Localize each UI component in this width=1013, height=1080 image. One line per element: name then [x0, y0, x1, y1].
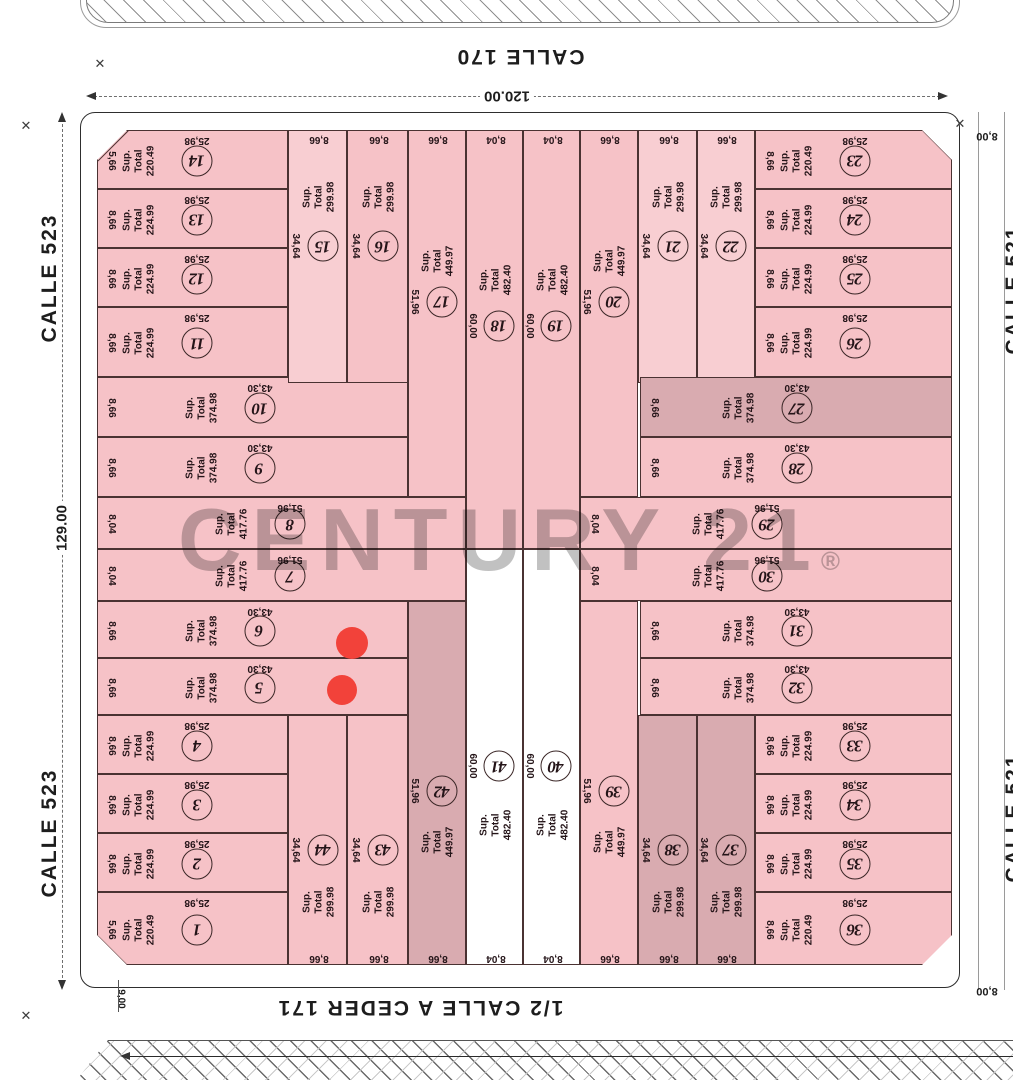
- lot-number: 5: [256, 678, 264, 698]
- lot-number-circle: 23: [839, 145, 870, 176]
- lot-area-label: Sup. Total 449.97: [592, 827, 627, 858]
- lot-area-label: Sup. Total 374.98: [721, 615, 756, 646]
- lot-number: 26: [847, 333, 862, 353]
- lot-number: 6: [256, 621, 264, 641]
- lot-length-dimension: 60,00: [523, 313, 535, 338]
- street-name-right-upper: CALLE 521: [1002, 226, 1013, 355]
- lot-10: 8,66Sup. Total 374.981043,30: [97, 377, 408, 437]
- lot-5: 8,66Sup. Total 374.98543,30: [97, 658, 408, 715]
- lot-area-label: Sup. Total 449.97: [592, 246, 627, 277]
- lot-13: 8,66Sup. Total 224.991325,98: [97, 189, 288, 248]
- lot-3: 8,66Sup. Total 224.99325,98: [97, 774, 288, 833]
- lot-number-circle: 36: [839, 914, 870, 945]
- sidewalk-tick-line: [118, 980, 119, 1012]
- width-dimension: 120.00: [480, 88, 534, 105]
- lot-24: 8,66Sup. Total 224.992425,98: [755, 189, 952, 248]
- lot-length-dimension: 43,30: [247, 381, 272, 393]
- lot-area-label: Sup. Total 299.98: [361, 887, 396, 918]
- lot-area-label: Sup. Total 224.99: [122, 204, 157, 235]
- lot-number: 24: [847, 210, 862, 230]
- lot-length-dimension: 25,98: [185, 252, 210, 264]
- lot-length-dimension: 43,30: [784, 441, 809, 453]
- lot-number: 40: [549, 756, 564, 776]
- lot-side-dimension: 8,66: [648, 398, 660, 417]
- lot-28: 8,66Sup. Total 374.982843,30: [640, 437, 952, 497]
- lot-11: 8,66Sup. Total 224.991125,98: [97, 307, 288, 377]
- lot-number: 41: [492, 756, 507, 776]
- lot-number-circle: 34: [839, 789, 870, 820]
- lot-area-label: Sup. Total 220.49: [779, 914, 814, 945]
- lot-side-dimension: 8,04: [105, 514, 117, 533]
- lot-number: 36: [847, 920, 862, 940]
- lot-number: 1: [194, 920, 202, 940]
- lot-17: 8,66Sup. Total 449.971751,96: [408, 130, 466, 497]
- lot-length-dimension: 60,00: [523, 754, 535, 779]
- lot-number-circle: 13: [182, 204, 213, 235]
- lot-side-dimension: 8,66: [105, 333, 117, 352]
- lot-44: 4434,64Sup. Total 299.988,66: [288, 715, 347, 965]
- right-street-line-inner: [978, 112, 979, 990]
- survey-mark-icon: ✕: [21, 1008, 32, 1024]
- lot-side-dimension: 8,66: [763, 210, 775, 229]
- lot-number-circle: 18: [484, 310, 515, 341]
- lot-length-dimension: 43,30: [784, 381, 809, 393]
- lot-area-label: Sup. Total 224.99: [779, 730, 814, 761]
- lot-number-circle: 29: [752, 509, 783, 540]
- plat-map: CALLE 170 120.00 129.00 CALLE 523 CALLE …: [0, 0, 1013, 1080]
- lot-number: 44: [315, 840, 330, 860]
- lot-number-circle: 16: [367, 231, 398, 262]
- lot-area-label: Sup. Total 299.98: [709, 887, 744, 918]
- lot-side-dimension: 5,66: [105, 920, 117, 939]
- lot-side-dimension: 8,66: [105, 398, 117, 417]
- lot-width-dimension: 8,66: [309, 133, 328, 145]
- lot-number-circle: 14: [182, 145, 213, 176]
- lot-number-circle: 9: [244, 453, 275, 484]
- lot-43: 4334,64Sup. Total 299.988,66: [347, 715, 408, 965]
- lot-14: 5,66Sup. Total 220.491425,98: [97, 130, 288, 189]
- lot-width-dimension: 8,66: [369, 952, 388, 964]
- lot-number-circle: 28: [782, 453, 813, 484]
- survey-mark-icon: ✕: [955, 116, 966, 132]
- lot-width-dimension: 8,66: [600, 133, 619, 145]
- lot-number: 27: [790, 398, 805, 418]
- lot-area-label: Sup. Total 299.98: [301, 887, 336, 918]
- lot-side-dimension: 8,66: [105, 269, 117, 288]
- dimension-arrow-up-icon: [58, 112, 66, 122]
- lot-length-dimension: 51,96: [580, 289, 592, 314]
- lot-number: 8: [286, 514, 294, 534]
- lot-side-dimension: 8,66: [763, 736, 775, 755]
- lot-number: 35: [847, 854, 862, 874]
- lot-length-dimension: 25,98: [842, 252, 867, 264]
- lot-27: 8,66Sup. Total 374.982743,30: [640, 377, 952, 437]
- street-name-right-lower: CALLE 521: [1002, 754, 1013, 883]
- lot-25: 8,66Sup. Total 224.992525,98: [755, 248, 952, 307]
- lot-area-label: Sup. Total 299.98: [301, 181, 336, 212]
- lot-number: 3: [194, 795, 202, 815]
- lot-area-label: Sup. Total 417.76: [214, 509, 249, 540]
- street-hatching-top: [86, 0, 954, 23]
- lot-width-dimension: 8,66: [717, 133, 736, 145]
- lot-area-label: Sup. Total 374.98: [721, 672, 756, 703]
- dimension-arrow-left-icon: [86, 92, 96, 100]
- lot-area-label: Sup. Total 224.99: [122, 263, 157, 294]
- lot-length-dimension: 25,98: [185, 837, 210, 849]
- lot-area-label: Sup. Total 220.49: [122, 914, 157, 945]
- lot-number-circle: 4: [182, 730, 213, 761]
- lot-side-dimension: 8,66: [105, 458, 117, 477]
- lot-number-circle: 44: [307, 834, 338, 865]
- lot-length-dimension: 25,98: [185, 778, 210, 790]
- lot-length-dimension: 34,64: [639, 234, 651, 259]
- lot-area-label: Sup. Total 374.98: [184, 393, 219, 424]
- lot-area-label: Sup. Total 299.98: [651, 887, 686, 918]
- lot-34: 8,66Sup. Total 224.993425,98: [755, 774, 952, 833]
- lot-number-circle: 17: [427, 286, 458, 317]
- lot-area-label: Sup. Total 482.40: [478, 809, 513, 840]
- lot-area-label: Sup. Total 299.98: [651, 181, 686, 212]
- lot-7: 8,04Sup. Total 417.76751,96: [97, 549, 466, 601]
- right-sidewalk-dimension-bottom: 8,00: [976, 985, 997, 997]
- lot-number-circle: 6: [244, 615, 275, 646]
- lot-number: 39: [607, 781, 622, 801]
- lot-number: 42: [435, 781, 450, 801]
- lot-39: 3951,96Sup. Total 449.978,66: [580, 601, 638, 965]
- lot-30: 8,04Sup. Total 417.763051,96: [580, 549, 952, 601]
- lot-side-dimension: 8,04: [588, 514, 600, 533]
- lot-number-circle: 33: [839, 730, 870, 761]
- lot-number-circle: 24: [839, 204, 870, 235]
- red-marker-dot: [336, 627, 368, 659]
- lot-number-circle: 41: [484, 751, 515, 782]
- lot-number-circle: 2: [182, 848, 213, 879]
- lot-width-dimension: 8,66: [659, 952, 678, 964]
- lot-length-dimension: 34,64: [289, 234, 301, 259]
- lot-number: 20: [607, 292, 622, 312]
- lot-number: 21: [665, 236, 680, 256]
- lot-number-circle: 43: [367, 834, 398, 865]
- lot-length-dimension: 51,96: [408, 779, 420, 804]
- lot-number-circle: 32: [782, 672, 813, 703]
- lot-36: 8,66Sup. Total 220.493625,98: [755, 892, 952, 965]
- lot-length-dimension: 25,98: [185, 719, 210, 731]
- lot-35: 8,66Sup. Total 224.993525,98: [755, 833, 952, 892]
- lot-side-dimension: 8,66: [105, 854, 117, 873]
- lot-number-circle: 42: [427, 776, 458, 807]
- lot-32: 8,66Sup. Total 374.983243,30: [640, 658, 952, 715]
- survey-mark-icon: ✕: [95, 56, 106, 72]
- lot-side-dimension: 8,66: [105, 210, 117, 229]
- lot-length-dimension: 51,96: [754, 553, 779, 565]
- lot-length-dimension: 60,00: [466, 754, 478, 779]
- lot-length-dimension: 25,98: [185, 134, 210, 146]
- lot-area-label: Sup. Total 224.99: [779, 789, 814, 820]
- lot-number: 25: [847, 269, 862, 289]
- lot-length-dimension: 34,64: [697, 837, 709, 862]
- lot-length-dimension: 43,30: [247, 605, 272, 617]
- lot-length-dimension: 43,30: [247, 662, 272, 674]
- lot-area-label: Sup. Total 374.98: [184, 672, 219, 703]
- lot-number-circle: 30: [752, 561, 783, 592]
- lot-19: 8,04Sup. Total 482.401960,00: [523, 130, 580, 549]
- lot-length-dimension: 43,30: [784, 662, 809, 674]
- lot-area-label: Sup. Total 374.98: [184, 615, 219, 646]
- lot-number-circle: 38: [657, 834, 688, 865]
- lot-number-circle: 31: [782, 615, 813, 646]
- lot-area-label: Sup. Total 449.97: [420, 827, 455, 858]
- lot-number: 23: [847, 151, 862, 171]
- lot-22: 8,66Sup. Total 299.982234,64: [697, 130, 755, 383]
- lot-length-dimension: 51,96: [754, 501, 779, 513]
- lot-length-dimension: 34,64: [639, 837, 651, 862]
- lot-number: 38: [665, 840, 680, 860]
- lot-number: 14: [190, 151, 205, 171]
- street-name-top: CALLE 170: [456, 44, 585, 68]
- lot-width-dimension: 8,66: [369, 133, 388, 145]
- lot-8: 8,04Sup. Total 417.76851,96: [97, 497, 466, 549]
- lot-length-dimension: 34,64: [697, 234, 709, 259]
- lot-area-label: Sup. Total 374.98: [721, 393, 756, 424]
- lot-number: 9: [256, 458, 264, 478]
- lot-1: 5,66Sup. Total 220.49125,98: [97, 892, 288, 965]
- lot-length-dimension: 25,98: [842, 193, 867, 205]
- height-dimension: 129.00: [54, 501, 71, 555]
- lot-width-dimension: 8,04: [543, 133, 562, 145]
- lot-12: 8,66Sup. Total 224.991225,98: [97, 248, 288, 307]
- lot-side-dimension: 8,66: [105, 678, 117, 697]
- lot-length-dimension: 51,96: [277, 553, 302, 565]
- lot-15: 8,66Sup. Total 299.981534,64: [288, 130, 347, 383]
- lot-23: 8,66Sup. Total 220.492325,98: [755, 130, 952, 189]
- lot-width-dimension: 8,04: [486, 133, 505, 145]
- lot-side-dimension: 8,04: [105, 566, 117, 585]
- lot-number: 31: [790, 621, 805, 641]
- street-hatching-bottom: [72, 1040, 1013, 1080]
- lot-length-dimension: 43,30: [784, 605, 809, 617]
- lot-18: 8,04Sup. Total 482.401860,00: [466, 130, 523, 549]
- lot-width-dimension: 8,66: [659, 133, 678, 145]
- lot-number: 33: [847, 736, 862, 756]
- lot-length-dimension: 25,98: [185, 193, 210, 205]
- lot-area-label: Sup. Total 224.99: [779, 848, 814, 879]
- lot-side-dimension: 8,66: [648, 621, 660, 640]
- lot-length-dimension: 25,98: [842, 311, 867, 323]
- lot-side-dimension: 8,66: [763, 854, 775, 873]
- lot-number-circle: 5: [244, 672, 275, 703]
- lot-length-dimension: 25,98: [842, 837, 867, 849]
- red-marker-dot: [327, 675, 357, 705]
- lot-area-label: Sup. Total 449.97: [420, 246, 455, 277]
- lot-side-dimension: 8,66: [648, 458, 660, 477]
- lot-number-circle: 26: [839, 328, 870, 359]
- lot-number-circle: 40: [541, 751, 572, 782]
- lot-number: 28: [790, 458, 805, 478]
- lot-number: 43: [375, 840, 390, 860]
- lot-number: 17: [435, 292, 450, 312]
- lot-number-circle: 27: [782, 393, 813, 424]
- lot-area-label: Sup. Total 299.98: [361, 181, 396, 212]
- lot-number: 18: [492, 316, 507, 336]
- lot-length-dimension: 25,98: [185, 896, 210, 908]
- lot-number: 15: [315, 236, 330, 256]
- lot-length-dimension: 25,98: [842, 719, 867, 731]
- lot-number: 7: [286, 566, 294, 586]
- lot-length-dimension: 34,64: [289, 837, 301, 862]
- lot-number-circle: 22: [716, 231, 747, 262]
- lot-width-dimension: 8,66: [600, 952, 619, 964]
- lot-number: 29: [760, 514, 775, 534]
- lot-37: 3734,64Sup. Total 299.988,66: [697, 715, 755, 965]
- lot-number: 32: [790, 678, 805, 698]
- lot-number-circle: 25: [839, 263, 870, 294]
- lot-area-label: Sup. Total 224.99: [779, 204, 814, 235]
- lot-length-dimension: 43,30: [247, 441, 272, 453]
- street-name-left-lower: CALLE 523: [38, 769, 62, 898]
- lot-area-label: Sup. Total 417.76: [691, 509, 726, 540]
- lot-area-label: Sup. Total 374.98: [721, 453, 756, 484]
- lot-number-circle: 10: [244, 393, 275, 424]
- lot-number-circle: 12: [182, 263, 213, 294]
- lot-number-circle: 1: [182, 914, 213, 945]
- lot-length-dimension: 25,98: [842, 896, 867, 908]
- lot-area-label: Sup. Total 224.99: [122, 328, 157, 359]
- lot-area-label: Sup. Total 482.40: [535, 809, 570, 840]
- lot-number-circle: 19: [541, 310, 572, 341]
- lot-area-label: Sup. Total 482.40: [535, 264, 570, 295]
- lot-area-label: Sup. Total 224.99: [122, 848, 157, 879]
- lot-length-dimension: 25,98: [842, 778, 867, 790]
- lot-33: 8,66Sup. Total 224.993325,98: [755, 715, 952, 774]
- lot-26: 8,66Sup. Total 224.992625,98: [755, 307, 952, 377]
- lot-width-dimension: 8,66: [428, 952, 447, 964]
- lot-area-label: Sup. Total 224.99: [779, 328, 814, 359]
- lot-16: 8,66Sup. Total 299.981634,64: [347, 130, 408, 383]
- dimension-arrow-down-icon: [58, 980, 66, 990]
- lot-area-label: Sup. Total 224.99: [779, 263, 814, 294]
- lot-length-dimension: 34,64: [349, 837, 361, 862]
- lot-40: 4060,00Sup. Total 482.408,04: [523, 549, 580, 965]
- lot-41: 4160,00Sup. Total 482.408,04: [466, 549, 523, 965]
- lot-area-label: Sup. Total 220.49: [779, 145, 814, 176]
- lot-9: 8,66Sup. Total 374.98943,30: [97, 437, 408, 497]
- street-name-bottom: 1/2 CALLE A CEDER 171: [277, 995, 564, 1019]
- lot-38: 3834,64Sup. Total 299.988,66: [638, 715, 697, 965]
- lot-width-dimension: 8,66: [309, 952, 328, 964]
- lot-side-dimension: 8,04: [588, 566, 600, 585]
- lot-number: 13: [190, 210, 205, 230]
- lot-width-dimension: 8,66: [428, 133, 447, 145]
- lot-side-dimension: 8,66: [105, 795, 117, 814]
- lot-area-label: Sup. Total 224.99: [122, 730, 157, 761]
- lot-side-dimension: 8,66: [763, 333, 775, 352]
- lot-side-dimension: 8,66: [648, 678, 660, 697]
- lot-number-circle: 8: [274, 509, 305, 540]
- lot-length-dimension: 51,96: [277, 501, 302, 513]
- lot-side-dimension: 8,66: [763, 269, 775, 288]
- lot-number: 2: [194, 854, 202, 874]
- lot-number: 12: [190, 269, 205, 289]
- lot-area-label: Sup. Total 374.98: [184, 453, 219, 484]
- lot-side-dimension: 8,66: [763, 795, 775, 814]
- lot-length-dimension: 60,00: [466, 313, 478, 338]
- lot-side-dimension: 8,66: [105, 621, 117, 640]
- lot-number: 19: [549, 316, 564, 336]
- street-name-left-upper: CALLE 523: [38, 214, 62, 343]
- lot-length-dimension: 34,64: [349, 234, 361, 259]
- lot-length-dimension: 51,96: [580, 779, 592, 804]
- lot-area-label: Sup. Total 299.98: [709, 181, 744, 212]
- dimension-arrow-right-icon: [938, 92, 948, 100]
- bottom-dimension-arrow-icon: [120, 1052, 130, 1060]
- lot-number: 11: [190, 333, 204, 353]
- bottom-dimension-line: [128, 1056, 1013, 1057]
- lot-42: 4251,96Sup. Total 449.978,66: [408, 601, 466, 965]
- lot-number-circle: 15: [307, 231, 338, 262]
- lot-side-dimension: 8,66: [763, 151, 775, 170]
- survey-mark-icon: ✕: [21, 118, 32, 134]
- lot-number: 4: [194, 736, 202, 756]
- lot-side-dimension: 8,66: [105, 736, 117, 755]
- lot-length-dimension: 51,96: [408, 289, 420, 314]
- lot-area-label: Sup. Total 482.40: [478, 264, 513, 295]
- lot-length-dimension: 25,98: [185, 311, 210, 323]
- lot-number: 34: [847, 795, 862, 815]
- lot-number: 22: [724, 236, 739, 256]
- lot-number-circle: 7: [274, 561, 305, 592]
- lot-side-dimension: 5,66: [105, 151, 117, 170]
- lot-number-circle: 3: [182, 789, 213, 820]
- lot-number: 30: [760, 566, 775, 586]
- lot-20: 8,66Sup. Total 449.972051,96: [580, 130, 638, 497]
- lot-width-dimension: 8,04: [486, 952, 505, 964]
- lot-side-dimension: 8,66: [763, 920, 775, 939]
- lot-4: 8,66Sup. Total 224.99425,98: [97, 715, 288, 774]
- lot-number-circle: 11: [182, 328, 213, 359]
- lot-number: 37: [724, 840, 739, 860]
- lot-2: 8,66Sup. Total 224.99225,98: [97, 833, 288, 892]
- lot-width-dimension: 8,04: [543, 952, 562, 964]
- lot-number-circle: 39: [599, 776, 630, 807]
- lot-number-circle: 21: [657, 231, 688, 262]
- lot-area-label: Sup. Total 417.76: [214, 561, 249, 592]
- lot-length-dimension: 25,98: [842, 134, 867, 146]
- lot-area-label: Sup. Total 224.99: [122, 789, 157, 820]
- lot-number-circle: 37: [716, 834, 747, 865]
- lot-number-circle: 20: [599, 286, 630, 317]
- right-sidewalk-dimension-top: 8,00: [976, 130, 997, 142]
- lot-number-circle: 35: [839, 848, 870, 879]
- lot-21: 8,66Sup. Total 299.982134,64: [638, 130, 697, 383]
- lot-area-label: Sup. Total 417.76: [691, 561, 726, 592]
- lot-number: 10: [252, 398, 267, 418]
- lot-29: 8,04Sup. Total 417.762951,96: [580, 497, 952, 549]
- lot-31: 8,66Sup. Total 374.983143,30: [640, 601, 952, 658]
- lot-number: 16: [375, 236, 390, 256]
- lot-area-label: Sup. Total 220.49: [122, 145, 157, 176]
- lot-width-dimension: 8,66: [717, 952, 736, 964]
